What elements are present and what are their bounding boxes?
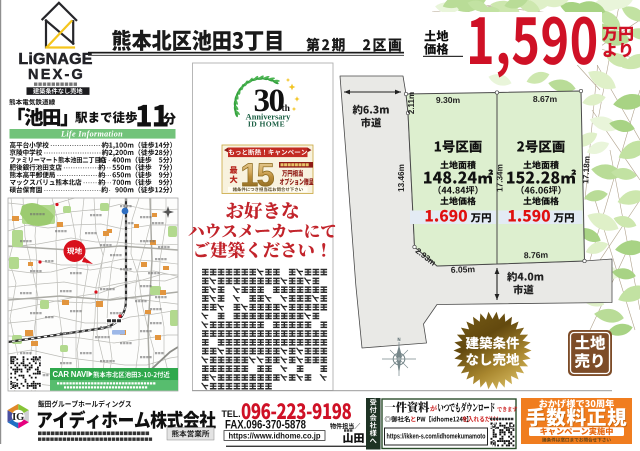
svg-text:https://www.idhome.co.jp: https://www.idhome.co.jp — [229, 431, 321, 440]
svg-text:17.18m: 17.18m — [581, 156, 591, 184]
svg-text:8.67m: 8.67m — [533, 94, 558, 104]
svg-text:2.11m: 2.11m — [407, 92, 416, 114]
svg-text:IG: IG — [12, 412, 24, 423]
svg-text:8.76m: 8.76m — [524, 250, 549, 260]
svg-text:ID HOME: ID HOME — [248, 119, 285, 128]
svg-text:6.05m: 6.05m — [451, 264, 476, 275]
svg-text:17.34m: 17.34m — [496, 164, 505, 192]
svg-text:https://ikken-s.com/idhomekuma: https://ikken-s.com/idhomekumamoto — [387, 432, 486, 441]
svg-text:NEX-G: NEX-G — [28, 67, 85, 83]
svg-text:LiGNAGE: LiGNAGE — [18, 51, 92, 68]
svg-text:13.46m: 13.46m — [397, 164, 406, 192]
svg-text:FAX.096-370-5878: FAX.096-370-5878 — [225, 419, 306, 431]
svg-text:CAR NAVI: CAR NAVI — [53, 370, 89, 379]
svg-text:Life Information: Life Information — [60, 129, 123, 138]
svg-text:TEL.: TEL. — [222, 409, 241, 419]
svg-text:9.30m: 9.30m — [436, 95, 461, 105]
